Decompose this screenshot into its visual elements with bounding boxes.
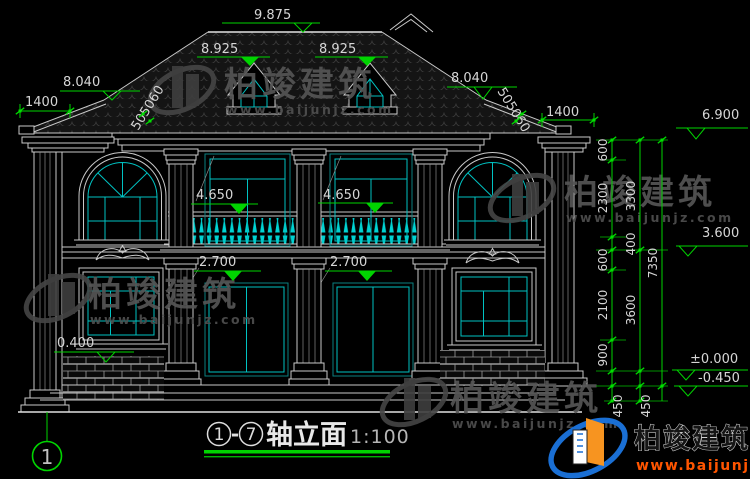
elev-balcony-right: 4.650	[318, 188, 393, 213]
cad-elevation-screenshot: 柏竣建筑 www.baijunjz.com 柏竣建筑 www.baijunjz.…	[0, 0, 750, 479]
elev-ridge: 9.875	[222, 8, 320, 32]
svg-text:8.925: 8.925	[319, 42, 356, 57]
pilaster-2f-right	[413, 149, 447, 247]
axis-start-number: 1	[214, 425, 225, 445]
title-block: 1 - 7 轴立面 1:100	[204, 419, 410, 457]
fascia-cap-left	[19, 126, 34, 134]
svg-text:2.700: 2.700	[330, 255, 367, 270]
watermark-left: 柏竣建筑 www.baijunjz.com	[19, 266, 258, 330]
svg-text:4.650: 4.650	[323, 188, 360, 203]
chain-dim: 400	[624, 233, 638, 256]
pilaster-2f-center	[292, 149, 326, 247]
svg-text:3.600: 3.600	[702, 226, 739, 241]
drawing-scale: 1:100	[350, 426, 410, 448]
chain-dim: 3300	[624, 181, 638, 212]
chain-dim: 600	[596, 249, 610, 272]
watermark-url: www.baijunjz.com	[90, 312, 258, 327]
axis-end-number: 7	[246, 425, 257, 445]
svg-text:1400: 1400	[546, 105, 579, 120]
title-underline-thin	[204, 456, 390, 457]
chain-dim: 600	[596, 139, 610, 162]
drawing-title: 轴立面	[266, 419, 347, 451]
chain-dim: 2300	[596, 183, 610, 214]
elev-floor2: 3.600	[676, 226, 748, 256]
svg-text:9.875: 9.875	[254, 8, 291, 23]
svg-text:8.925: 8.925	[201, 42, 238, 57]
pilaster-2f-left	[164, 149, 198, 247]
gf-window-right-frame	[452, 268, 536, 345]
main-cornice	[112, 133, 490, 139]
chain-dim: 900	[596, 344, 610, 367]
elev-eave: 6.900	[676, 108, 748, 139]
title-underline-thick	[204, 450, 390, 454]
arched-window-left-glazing	[88, 163, 157, 241]
chain-dim: 7350	[646, 248, 660, 279]
svg-text:6.900: 6.900	[702, 108, 739, 123]
logo-building-white	[573, 430, 587, 464]
axis-bubble-number: 1	[41, 445, 54, 469]
gf-window-right-glazing	[461, 277, 527, 336]
axis-dash: -	[231, 422, 239, 446]
svg-text:8.040: 8.040	[63, 75, 100, 90]
chain-dim: 2100	[596, 290, 610, 321]
logo-url-text: www.baijunjz.com	[636, 458, 750, 474]
watermark-logo-icon	[483, 166, 561, 230]
svg-text:2.700: 2.700	[199, 255, 236, 270]
elev-door-right: 2.700	[325, 255, 392, 281]
logo-building-orange	[586, 418, 604, 466]
logo-brand-text: 柏竣建筑	[634, 423, 750, 455]
svg-text:8.040: 8.040	[451, 71, 488, 86]
rear-gable	[390, 14, 433, 32]
watermark-brand: 柏竣建筑	[450, 379, 602, 419]
watermark-brand: 柏竣建筑	[88, 275, 240, 315]
watermark-url: www.baijunjz.com	[226, 102, 394, 117]
porch-entablature-left	[22, 137, 114, 143]
chain-dim: 450	[611, 395, 625, 418]
watermark-top-left: 柏竣建筑 www.baijunjz.com	[143, 58, 394, 122]
chain-dim: 450	[639, 395, 653, 418]
svg-text:4.650: 4.650	[196, 188, 233, 203]
svg-text:-0.450: -0.450	[698, 371, 740, 386]
ornament-right	[466, 249, 519, 264]
fascia-cap-right	[556, 126, 571, 134]
watermark-brand: 柏竣建筑	[224, 65, 376, 105]
pilaster-gf-center	[289, 258, 329, 385]
chain-dim: 3600	[624, 295, 638, 326]
porch-entablature-right	[538, 137, 590, 143]
svg-text:±0.000: ±0.000	[690, 352, 738, 367]
svg-text:0.400: 0.400	[57, 336, 94, 351]
elev-grade: -0.450	[674, 371, 748, 396]
watermark-url: www.baijunjz.com	[566, 210, 734, 225]
grid-bubble: 1	[33, 412, 62, 471]
watermark-logo-icon	[19, 266, 97, 330]
elevation-drawing: 柏竣建筑 www.baijunjz.com 柏竣建筑 www.baijunjz.…	[0, 0, 750, 479]
svg-text:1400: 1400	[25, 95, 58, 110]
